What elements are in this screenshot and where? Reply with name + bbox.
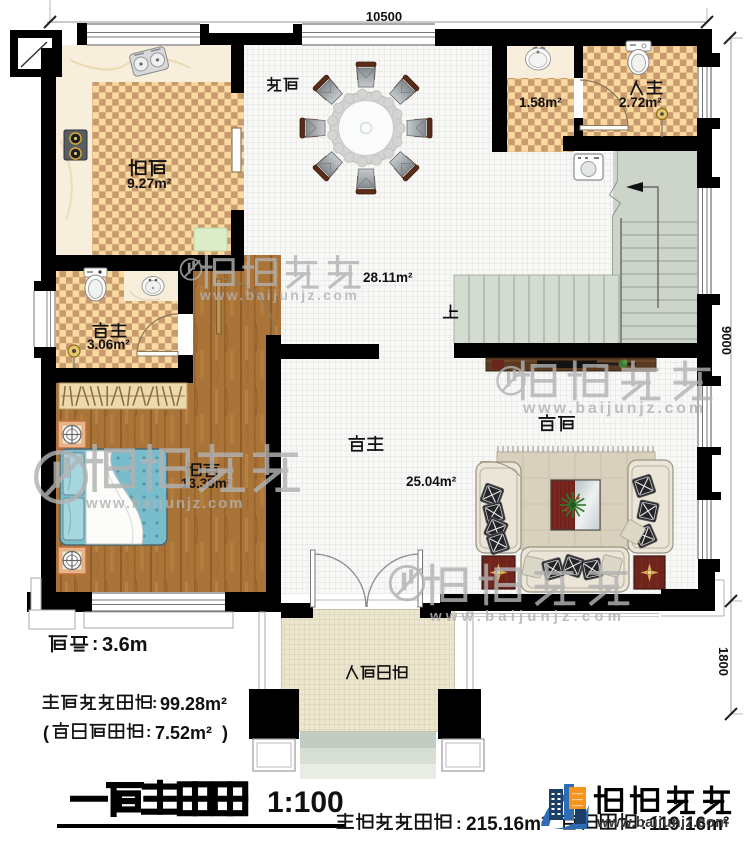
svg-text:1:100: 1:100 [267, 786, 344, 819]
svg-text:28.11m²: 28.11m² [363, 270, 413, 285]
svg-text:3.6m: 3.6m [102, 634, 148, 656]
svg-text::: : [92, 634, 98, 655]
svg-text:9.27m²: 9.27m² [127, 175, 172, 191]
svg-text:3.06m²: 3.06m² [87, 337, 130, 352]
svg-text::: : [456, 814, 462, 833]
svg-text:215.16m²: 215.16m² [466, 814, 547, 835]
svg-text:2.72m²: 2.72m² [619, 95, 662, 110]
svg-text:25.04m²: 25.04m² [406, 474, 457, 489]
svg-text:www.baijunjz.com: www.baijunjz.com [596, 815, 729, 831]
svg-text:1.58m²: 1.58m² [519, 95, 562, 110]
svg-text:www.baijunjz.com: www.baijunjz.com [429, 608, 625, 625]
svg-text:www.baijunjz.com: www.baijunjz.com [85, 495, 244, 512]
svg-text:1800: 1800 [716, 647, 731, 676]
svg-text::: : [146, 724, 151, 741]
svg-text::: : [152, 695, 157, 712]
svg-text:99.28m²: 99.28m² [160, 694, 227, 714]
svg-text:): ) [222, 723, 228, 743]
svg-text:www.baijunjz.com: www.baijunjz.com [522, 400, 706, 417]
svg-text:7.52m²: 7.52m² [155, 723, 212, 743]
svg-text:10500: 10500 [366, 9, 402, 24]
svg-text:www.baijunjz.com: www.baijunjz.com [199, 287, 359, 303]
svg-text:9000: 9000 [719, 326, 734, 355]
svg-text:(: ( [43, 723, 49, 743]
